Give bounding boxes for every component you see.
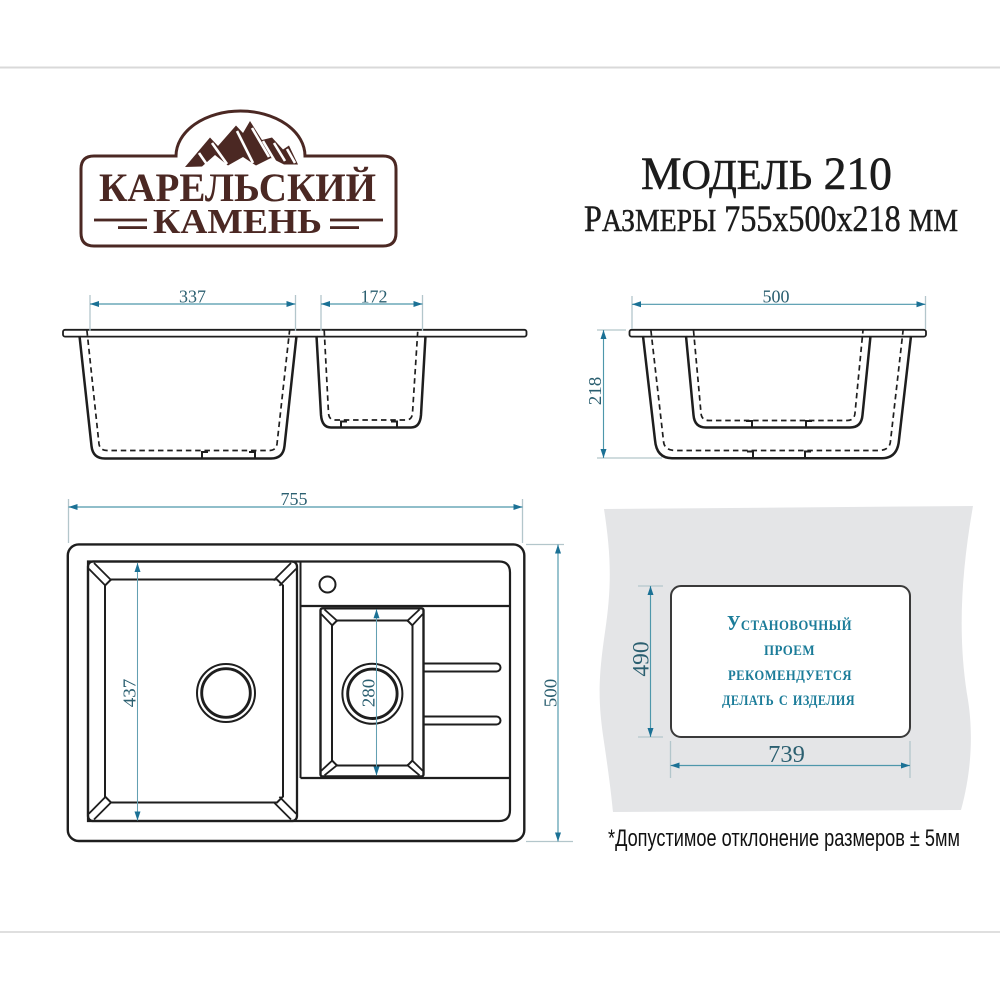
svg-text:739: 739 xyxy=(768,741,805,768)
svg-text:РАЗМЕРЫ 755х500х218 ММ: РАЗМЕРЫ 755х500х218 ММ xyxy=(584,199,958,240)
svg-text:Установочный: Установочный xyxy=(727,611,852,635)
svg-text:755: 755 xyxy=(281,489,308,509)
svg-text:*Допустимое отклонение размеро: *Допустимое отклонение размеров ± 5мм xyxy=(608,825,960,852)
svg-text:проем: проем xyxy=(764,636,815,660)
svg-text:500: 500 xyxy=(541,678,561,707)
svg-text:490: 490 xyxy=(629,641,655,676)
svg-text:218: 218 xyxy=(585,376,605,405)
svg-text:280: 280 xyxy=(359,678,379,707)
svg-text:делать с изделия: делать с изделия xyxy=(722,686,855,710)
svg-text:337: 337 xyxy=(179,287,206,307)
svg-text:КАМЕНЬ: КАМЕНЬ xyxy=(153,202,322,241)
svg-text:МОДЕЛЬ 210: МОДЕЛЬ 210 xyxy=(641,148,892,200)
svg-text:172: 172 xyxy=(361,287,388,307)
svg-text:437: 437 xyxy=(120,678,140,707)
svg-text:рекомендуется: рекомендуется xyxy=(728,661,852,685)
svg-text:500: 500 xyxy=(763,287,790,307)
